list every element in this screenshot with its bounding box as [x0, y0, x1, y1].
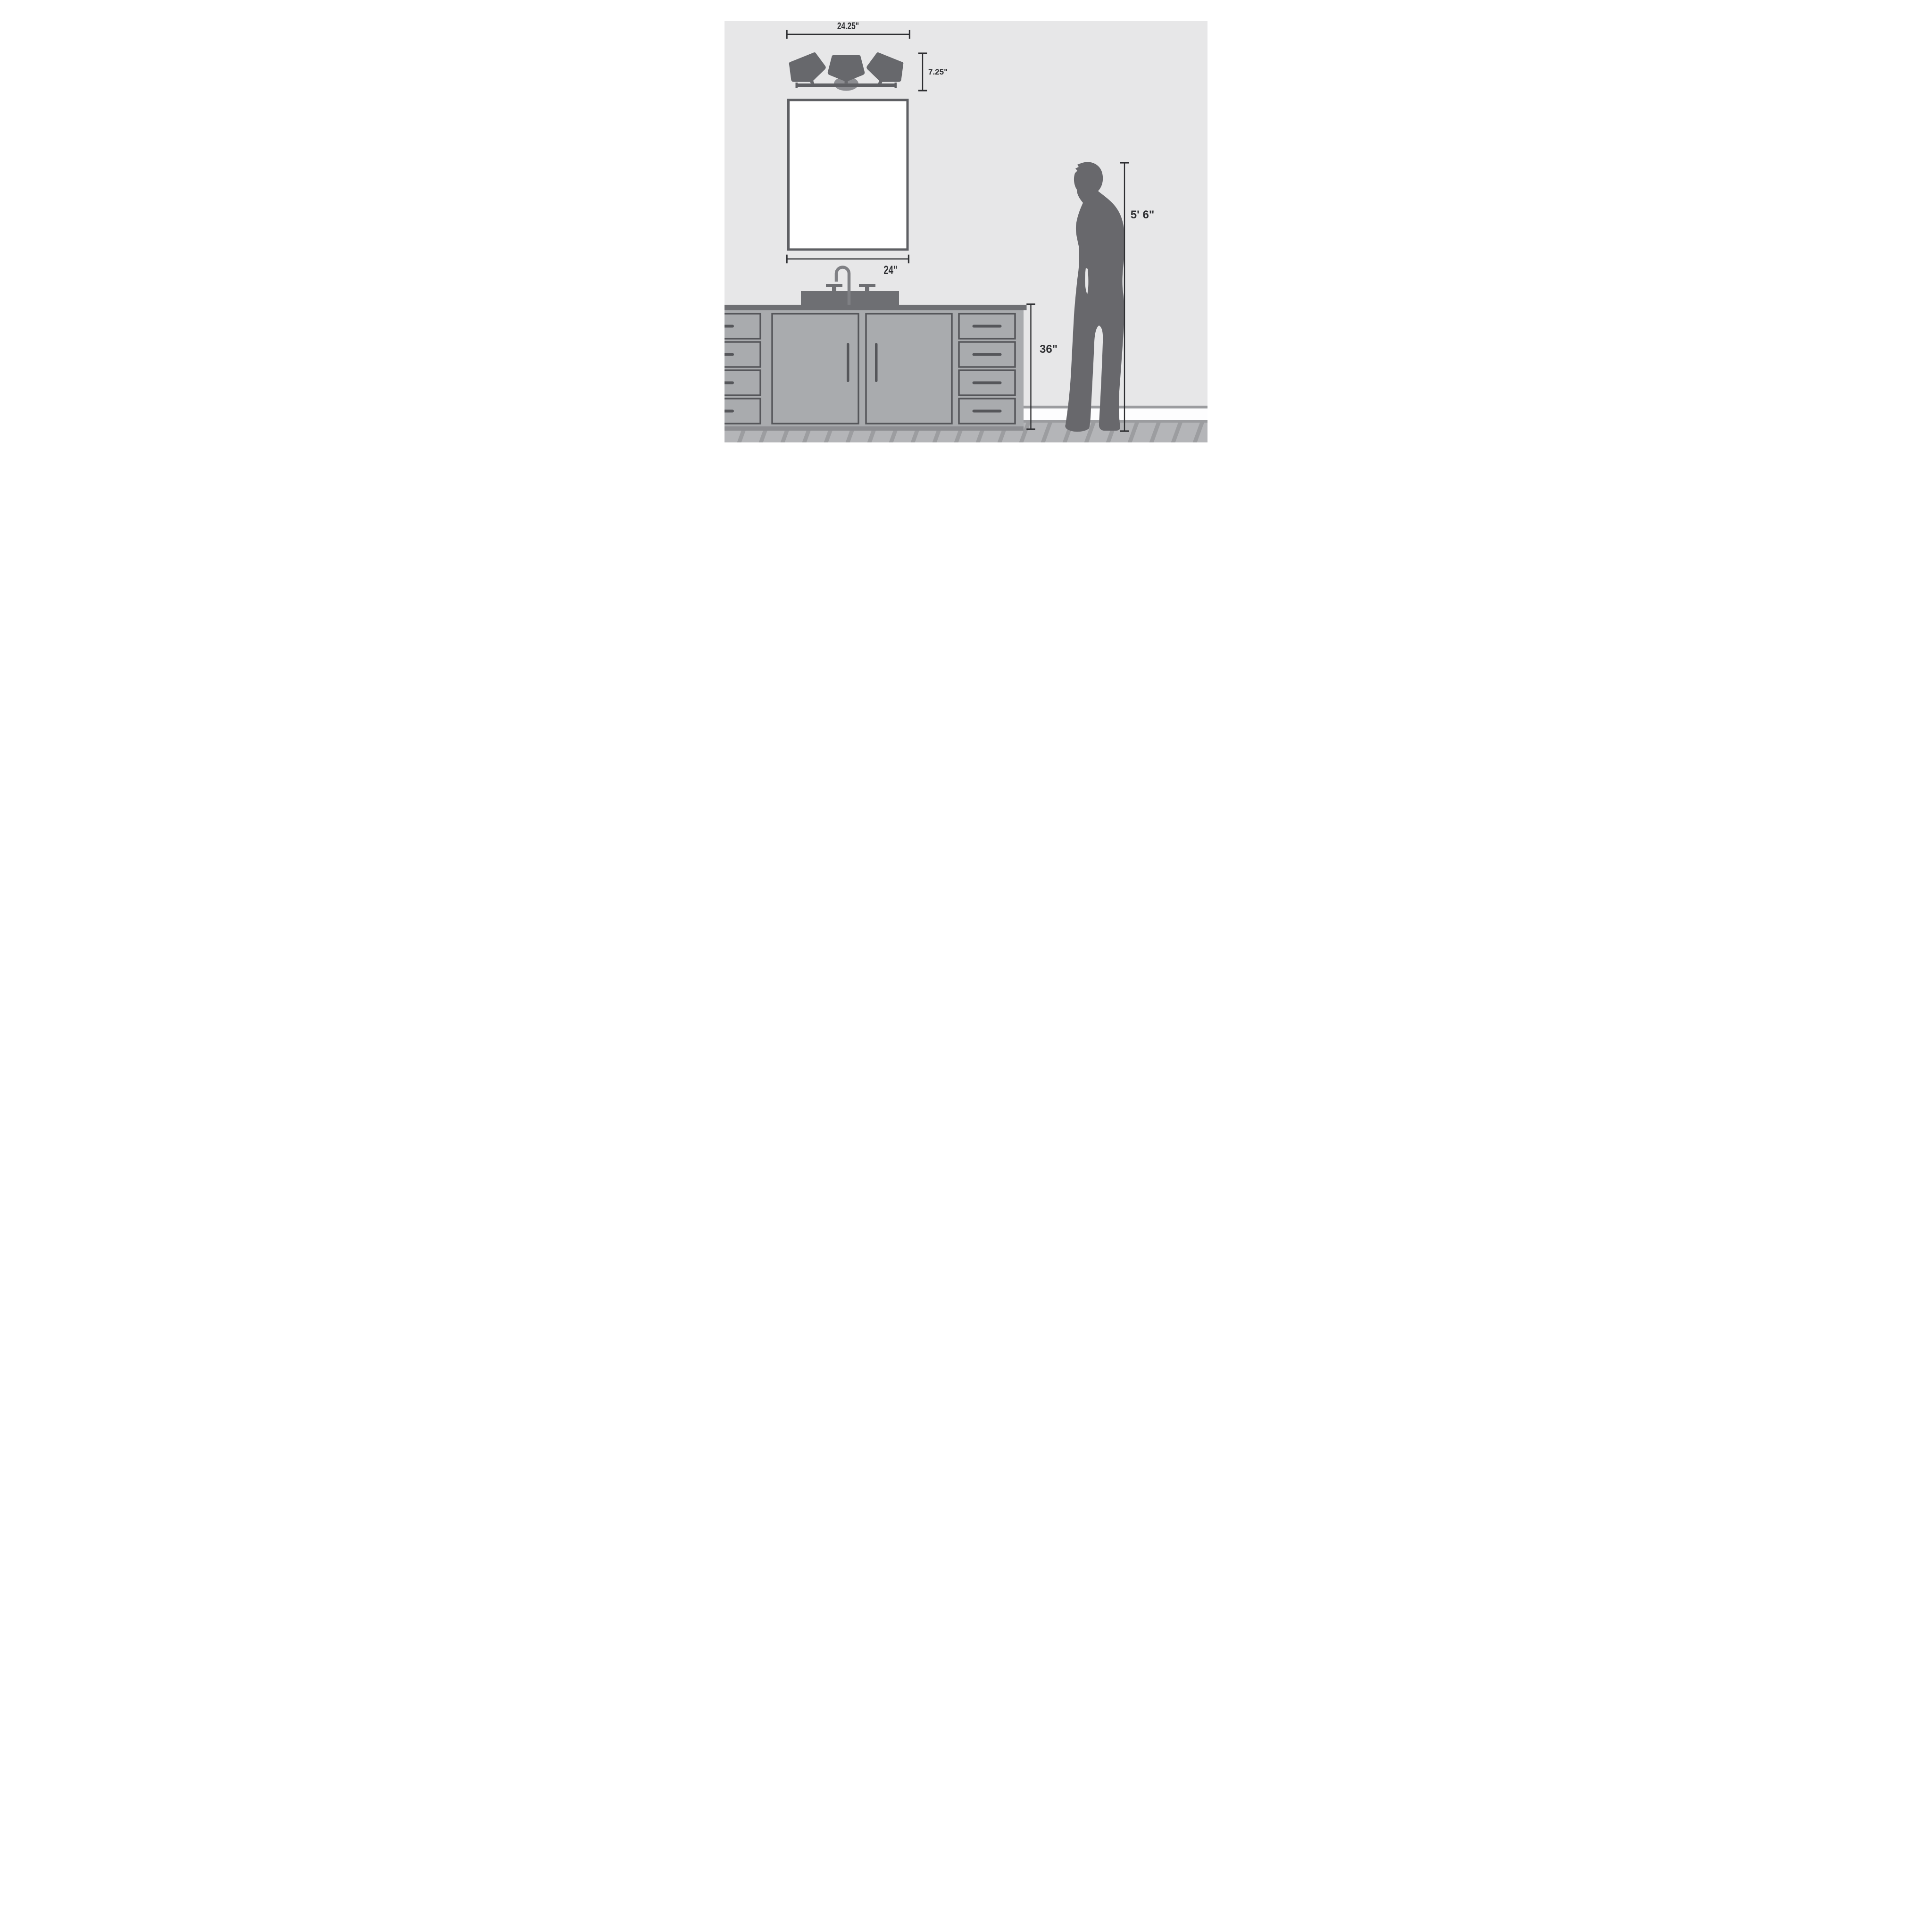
drawer-handle	[724, 410, 734, 413]
fixture-width-label: 24.25"	[837, 20, 859, 32]
person-height-label: 5' 6"	[1131, 208, 1154, 221]
drawer-handle	[724, 353, 734, 356]
mirror-glass	[790, 101, 907, 249]
toe-kick	[724, 426, 1024, 431]
door-handle	[847, 343, 849, 382]
fixture-height-label: 7.25"	[928, 67, 948, 76]
vanity-height-label: 36"	[1040, 343, 1058, 356]
drawer-handle	[724, 382, 734, 384]
drawer-handle	[973, 353, 1002, 356]
countertop	[724, 305, 1027, 310]
drawer-handle	[724, 325, 734, 328]
mirror	[787, 99, 909, 251]
drawer-handle	[973, 410, 1002, 413]
mirror-width-label: 24"	[883, 263, 897, 276]
door-handle	[875, 343, 878, 382]
size-guide-illustration: 24.25" 7.25" 24" 36" 5' 6"	[724, 0, 1207, 483]
vanity-cabinet	[724, 305, 1027, 431]
illustration-canvas: 24.25" 7.25" 24" 36" 5' 6"	[724, 0, 1207, 483]
drawer-handle	[973, 382, 1002, 384]
drawer-handle	[973, 325, 1002, 328]
